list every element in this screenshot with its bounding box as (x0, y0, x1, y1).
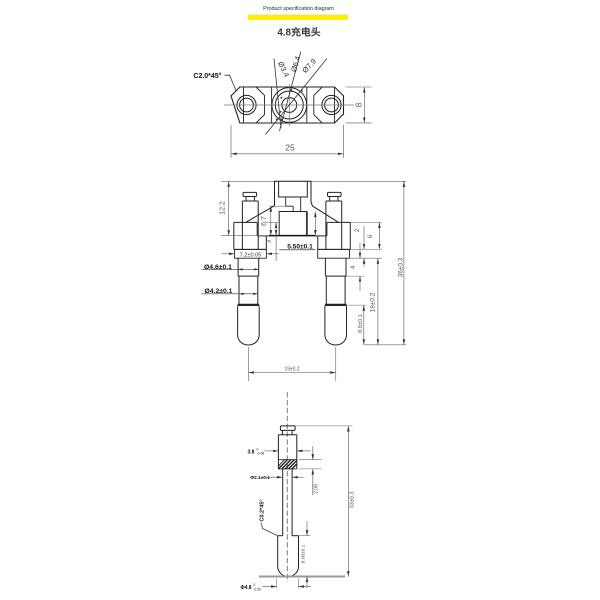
svg-text:3: 3 (267, 239, 273, 243)
svg-text:25: 25 (285, 143, 295, 153)
svg-text:4.8充电头: 4.8充电头 (277, 26, 320, 39)
svg-text:4: 4 (351, 265, 357, 269)
svg-text:0: 0 (254, 583, 256, 587)
svg-text:Ø4.2±0.1: Ø4.2±0.1 (205, 288, 233, 295)
svg-text:Product specification diagram: Product specification diagram (263, 6, 334, 12)
svg-text:36±0.3: 36±0.3 (397, 257, 404, 277)
svg-text:2.08: 2.08 (314, 484, 320, 494)
svg-text:12.2: 12.2 (219, 201, 226, 215)
svg-text:3.8: 3.8 (248, 449, 255, 455)
svg-text:6: 6 (367, 234, 374, 238)
svg-text:2: 2 (355, 228, 361, 232)
svg-text:33±0.3: 33±0.3 (349, 492, 355, 509)
svg-text:-0.05: -0.05 (254, 588, 261, 592)
svg-text:C0.2*45°: C0.2*45° (259, 499, 265, 521)
svg-text:8.08±0.1: 8.08±0.1 (301, 544, 307, 563)
svg-text:6.7: 6.7 (261, 216, 268, 226)
svg-text:8: 8 (355, 102, 364, 107)
svg-text:19±0.2: 19±0.2 (284, 367, 299, 373)
svg-text:Ø4.6±0.1: Ø4.6±0.1 (204, 264, 232, 271)
svg-text:C2.0*45°: C2.0*45° (193, 72, 221, 80)
svg-text:19±0.2: 19±0.2 (370, 292, 377, 312)
svg-text:Ø6.4: Ø6.4 (289, 55, 302, 73)
svg-text:-0.08: -0.08 (257, 452, 265, 456)
svg-text:Φ4.8: Φ4.8 (241, 585, 252, 591)
svg-text:7.2±0.05: 7.2±0.05 (240, 252, 262, 258)
svg-text:8.8±0.1: 8.8±0.1 (358, 314, 364, 333)
svg-text:5.50±0.1: 5.50±0.1 (287, 243, 313, 250)
